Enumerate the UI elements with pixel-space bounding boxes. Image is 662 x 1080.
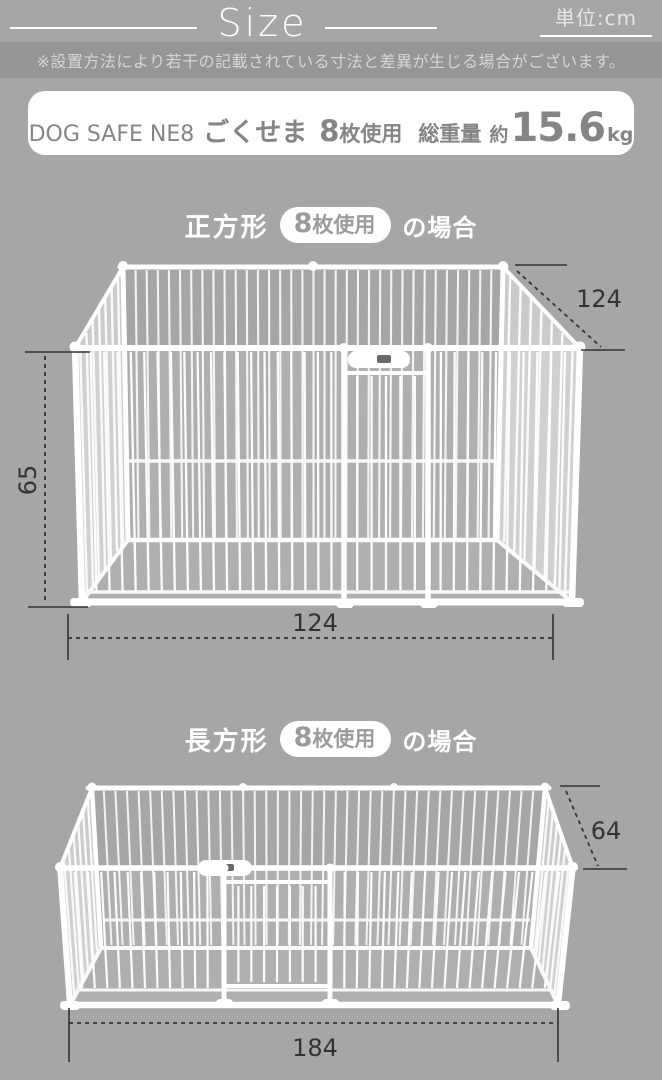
dimension-label-square-height: 65 bbox=[14, 465, 42, 496]
product-weight-unit: kg bbox=[607, 124, 633, 146]
rectangle-badge-unit: 枚使用 bbox=[312, 723, 375, 753]
rectangle-case-suffix: の場合 bbox=[402, 722, 477, 757]
unit-label: 単位:cm bbox=[540, 2, 652, 37]
product-series-name: ごくせま bbox=[203, 112, 307, 149]
rectangle-section-heading: 長方形 8 枚使用 の場合 bbox=[0, 718, 662, 760]
product-model: DOG SAFE NE8 bbox=[29, 122, 195, 147]
square-pen-illustration: 124 65 124 bbox=[0, 250, 662, 670]
rectangle-panel-badge: 8 枚使用 bbox=[280, 721, 392, 757]
rectangle-shape-label: 長方形 bbox=[185, 721, 269, 758]
rectangle-pen-front-panel bbox=[55, 860, 578, 1010]
square-case-suffix: の場合 bbox=[402, 208, 477, 243]
rectangle-badge-count: 8 bbox=[294, 722, 313, 753]
square-badge-unit: 枚使用 bbox=[312, 209, 375, 239]
product-panel-unit: 枚使用 bbox=[339, 118, 402, 148]
size-infographic-page: Size 単位:cm ※設置方法により若干の記載されている寸法と差異が生じる場合… bbox=[0, 0, 662, 1080]
product-panel-count: 8 bbox=[319, 114, 339, 148]
product-weight-value: 15.6 bbox=[510, 105, 605, 151]
page-title: Size bbox=[185, 0, 340, 46]
product-weight-label: 総重量 bbox=[418, 118, 481, 148]
square-panel-badge: 8 枚使用 bbox=[280, 207, 392, 243]
square-section-heading: 正方形 8 枚使用 の場合 bbox=[0, 204, 662, 246]
rectangle-pen-illustration: 64 184 bbox=[0, 770, 662, 1080]
dimension-label-rectangle-depth: 64 bbox=[591, 817, 622, 845]
title-rule-right bbox=[325, 27, 437, 29]
square-shape-label: 正方形 bbox=[185, 207, 269, 244]
dimension-label-square-depth: 124 bbox=[576, 285, 622, 313]
title-rule-left bbox=[10, 27, 197, 29]
square-badge-count: 8 bbox=[294, 208, 313, 239]
dimension-label-square-width: 124 bbox=[292, 609, 338, 637]
door-latch-button bbox=[377, 355, 391, 363]
square-pen-front-panel bbox=[70, 342, 586, 609]
dimension-label-rectangle-width: 184 bbox=[292, 1034, 338, 1062]
disclaimer-text: ※設置方法により若干の記載されている寸法と差異が生じる場合がございます。 bbox=[36, 48, 625, 72]
product-weight-prefix: 約 bbox=[489, 120, 508, 147]
product-summary-box: DOG SAFE NE8 ごくせま 8 枚使用 総重量 約 15.6 kg bbox=[28, 91, 634, 155]
disclaimer-banner: ※設置方法により若干の記載されている寸法と差異が生じる場合がございます。 bbox=[0, 42, 662, 78]
